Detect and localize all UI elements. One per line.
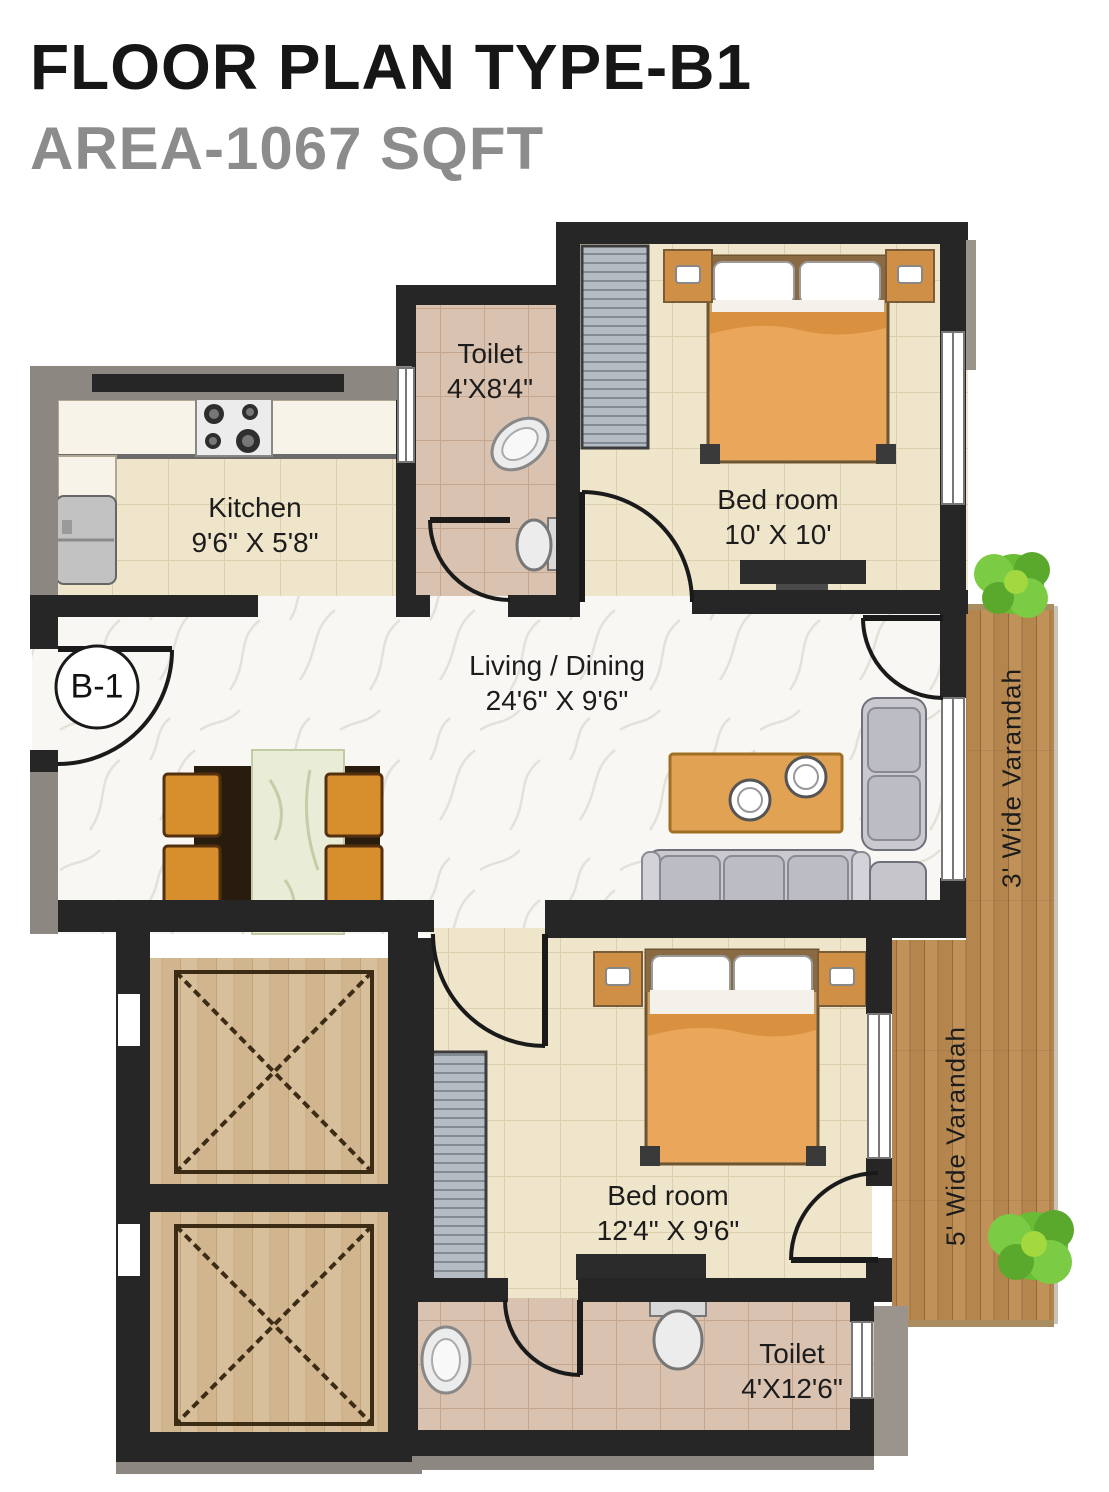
room-name: Kitchen xyxy=(191,490,318,525)
room-name: Bed room xyxy=(717,482,838,517)
varandah-5-label: 5' Wide Varandah xyxy=(941,1026,972,1246)
window-icon xyxy=(398,368,414,462)
room-name: Toilet xyxy=(741,1336,843,1371)
window-icon xyxy=(852,1322,872,1398)
window-icon xyxy=(942,332,964,504)
washbasin-icon xyxy=(422,1327,470,1393)
varandah-bottom-edge xyxy=(892,1320,1054,1327)
room-dims: 9'6" X 5'8" xyxy=(191,525,318,560)
room-dims: 10' X 10' xyxy=(717,517,838,552)
window-icon xyxy=(118,1224,140,1276)
floor-plan-drawing xyxy=(0,0,1109,1492)
room-name: Living / Dining xyxy=(469,648,645,683)
window-icon xyxy=(118,994,140,1046)
room-dims: 12'4" X 9'6" xyxy=(597,1213,740,1248)
loveseat-icon xyxy=(862,698,926,850)
room-name: Toilet xyxy=(447,336,533,371)
room-dims: 4'X8'4" xyxy=(447,371,533,406)
nightstand-icon xyxy=(594,952,642,1006)
wardrobe-icon xyxy=(582,246,648,448)
bed-icon xyxy=(640,950,826,1166)
bedroom-bottom-label: Bed room 12'4" X 9'6" xyxy=(597,1178,740,1248)
fridge-icon xyxy=(56,496,116,584)
bedroom-top-label: Bed room 10' X 10' xyxy=(717,482,838,552)
room-dims: 4'X12'6" xyxy=(741,1371,843,1406)
window-icon xyxy=(868,1014,890,1158)
floor-plan-page: FLOOR PLAN TYPE-B1 AREA-1067 SQFT xyxy=(0,0,1109,1492)
room-dims: 24'6" X 9'6" xyxy=(469,683,645,718)
kitchen-label: Kitchen 9'6" X 5'8" xyxy=(191,490,318,560)
nightstand-icon xyxy=(886,250,934,302)
window-icon xyxy=(942,698,964,880)
toilet-bottom-label: Toilet 4'X12'6" xyxy=(741,1336,843,1406)
room-name: Bed room xyxy=(597,1178,740,1213)
nightstand-icon xyxy=(664,250,712,302)
wardrobe-icon xyxy=(432,1052,486,1284)
living-label: Living / Dining 24'6" X 9'6" xyxy=(469,648,645,718)
bed-icon xyxy=(700,256,896,464)
coffee-table-icon xyxy=(670,754,842,832)
stove-icon xyxy=(196,398,272,456)
varandah-3-label: 3' Wide Varandah xyxy=(997,668,1028,888)
nightstand-icon xyxy=(818,952,866,1006)
unit-badge: B-1 xyxy=(71,668,124,707)
toilet-top-label: Toilet 4'X8'4" xyxy=(447,336,533,406)
toilet-commode-icon xyxy=(650,1296,706,1369)
